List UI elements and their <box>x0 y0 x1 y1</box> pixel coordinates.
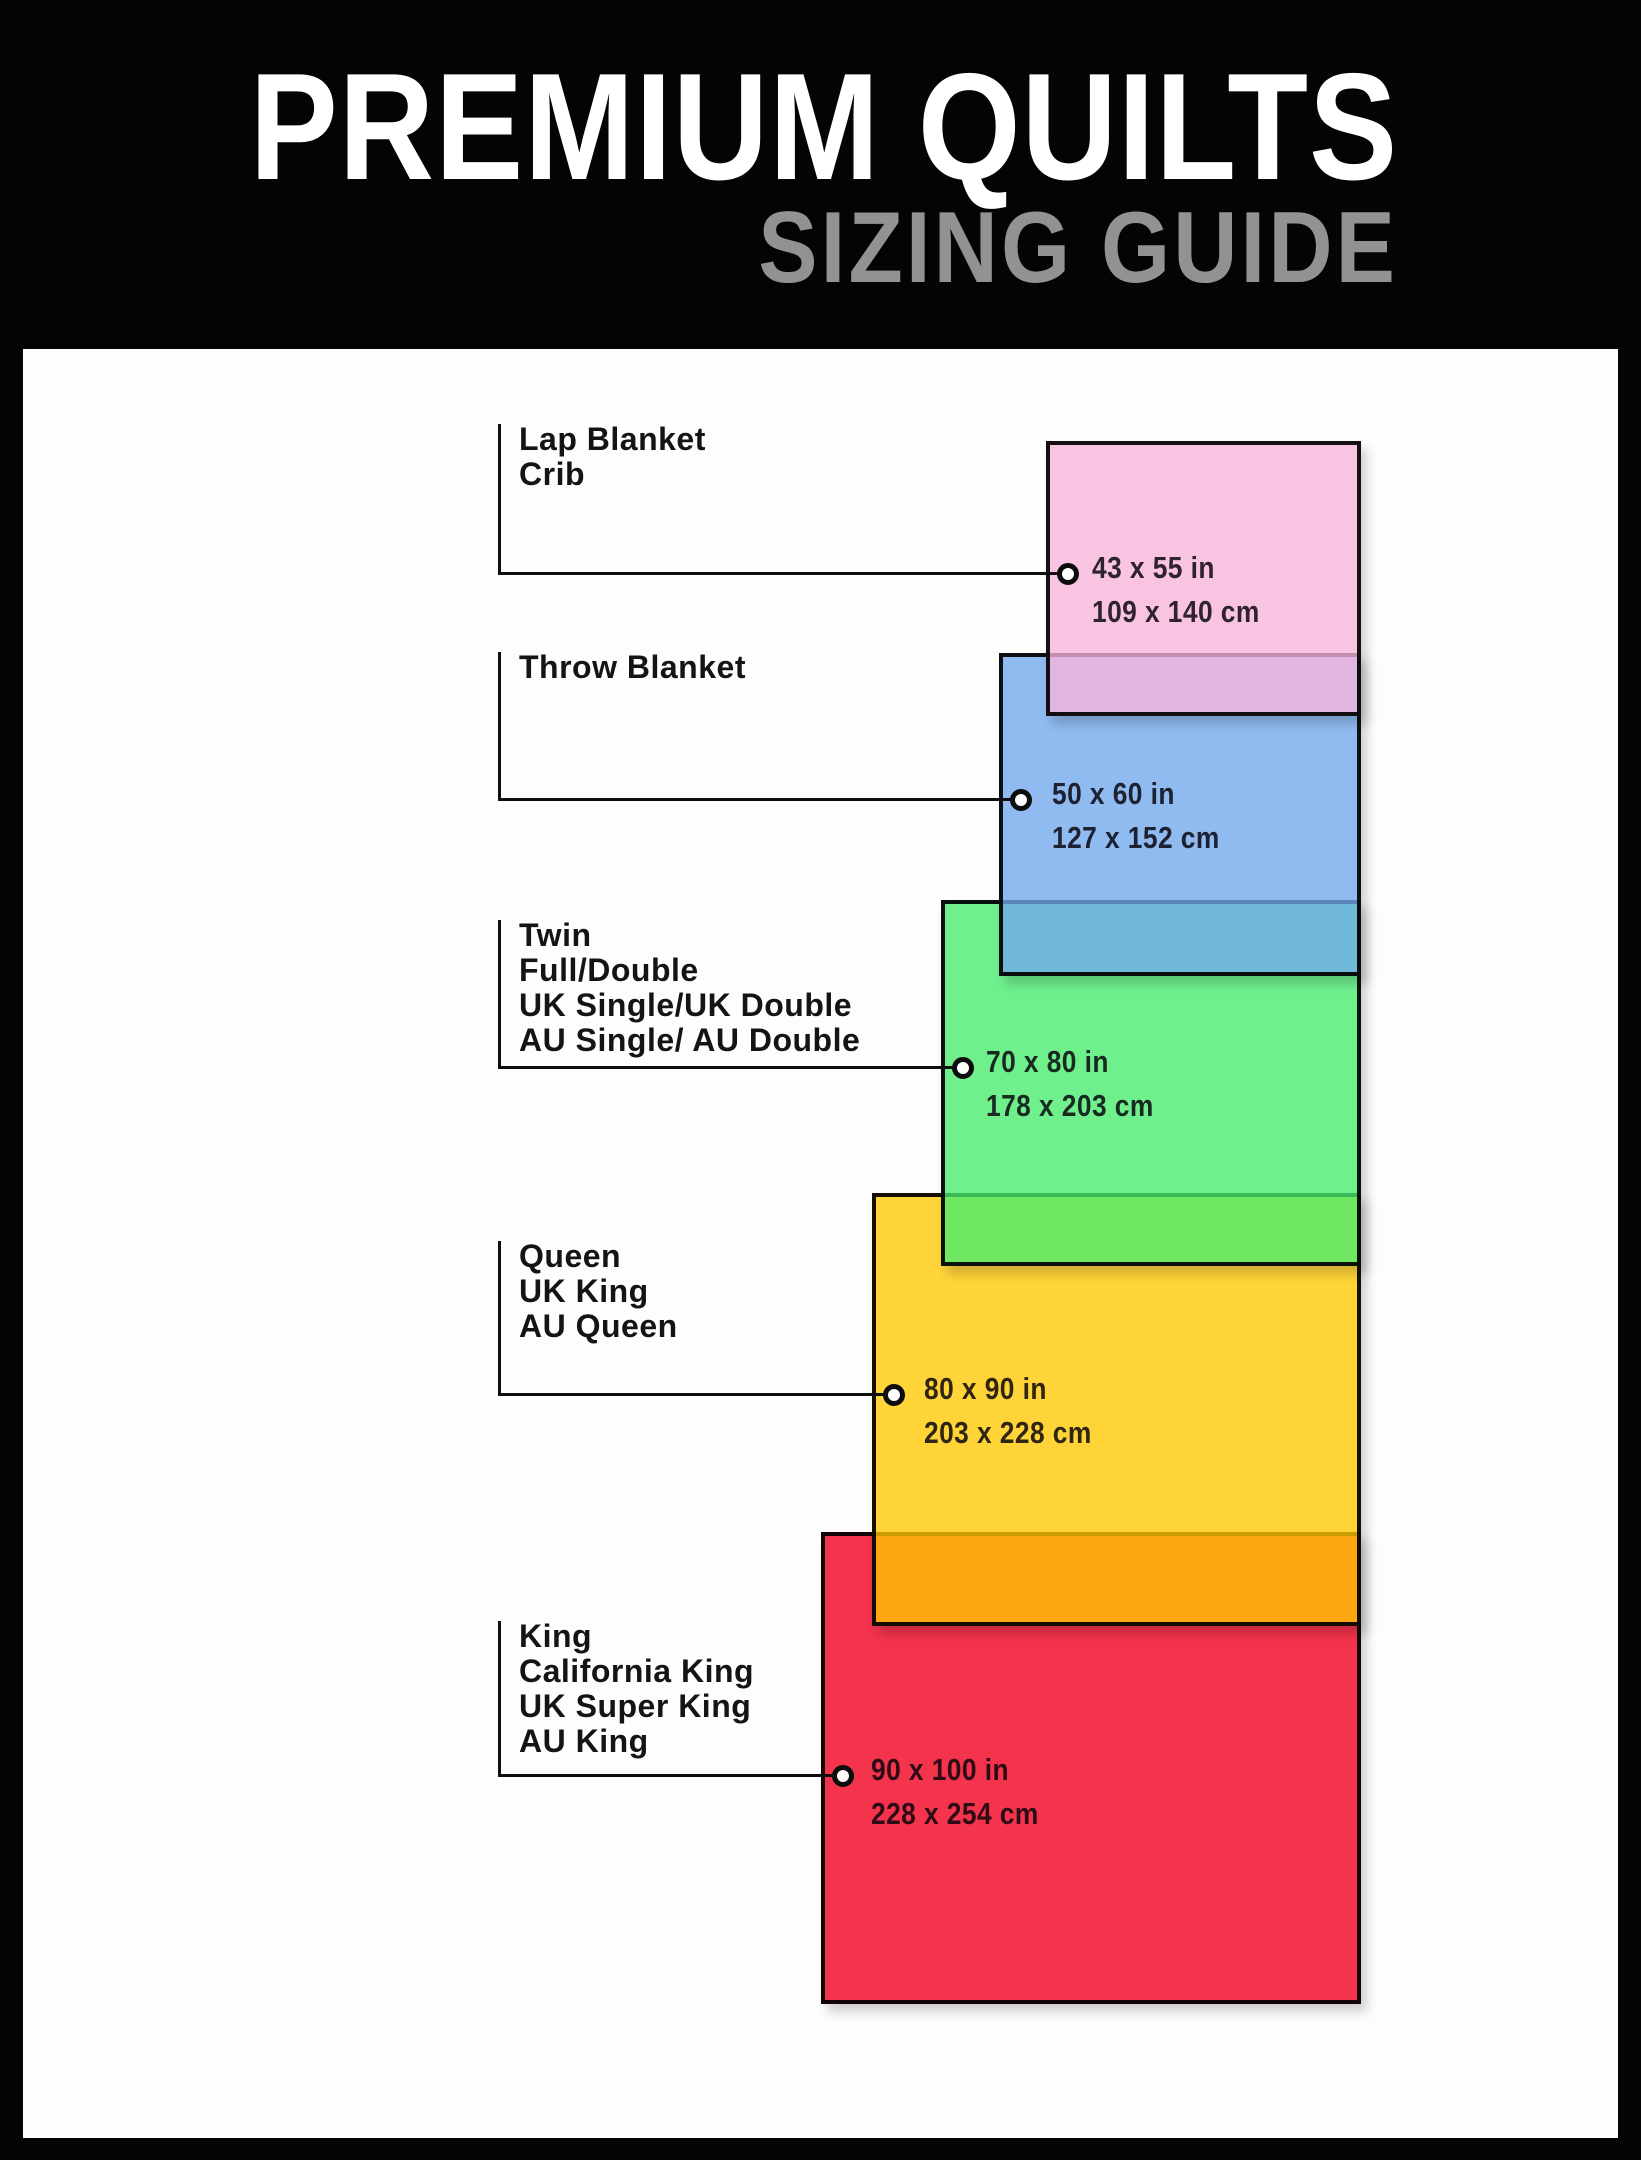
dimensions-inches: 90 x 100 in <box>871 1748 1039 1792</box>
page-title: PREMIUM QUILTS <box>250 52 1398 202</box>
size-label-line: UK Single/UK Double <box>519 988 860 1023</box>
size-label-line: Lap Blanket <box>519 422 706 457</box>
page-subtitle: SIZING GUIDE <box>758 198 1398 298</box>
dimensions-cm: 228 x 254 cm <box>871 1792 1039 1836</box>
leader-line-horizontal-queen-uk-king <box>498 1393 894 1396</box>
dimensions-cm: 127 x 152 cm <box>1052 816 1220 860</box>
infographic-page: { "header": { "title": "PREMIUM QUILTS",… <box>0 0 1641 2160</box>
size-label-line: California King <box>519 1654 754 1689</box>
leader-dot-throw-blanket <box>1010 789 1032 811</box>
leader-line-horizontal-throw-blanket <box>498 798 1021 801</box>
dimensions-queen-uk-king: 80 x 90 in203 x 228 cm <box>924 1367 1092 1455</box>
leader-line-vertical-throw-blanket <box>498 652 501 800</box>
size-label-line: AU Single/ AU Double <box>519 1023 860 1058</box>
size-label-line: UK Super King <box>519 1689 754 1724</box>
dimensions-inches: 43 x 55 in <box>1092 546 1260 590</box>
leader-line-horizontal-lap-blanket-crib <box>498 572 1068 575</box>
leader-dot-lap-blanket-crib <box>1057 563 1079 585</box>
size-label-twin-full-double: TwinFull/DoubleUK Single/UK DoubleAU Sin… <box>519 918 860 1058</box>
size-label-line: AU King <box>519 1724 754 1759</box>
leader-line-vertical-queen-uk-king <box>498 1241 501 1395</box>
size-label-king-california-king: KingCalifornia KingUK Super KingAU King <box>519 1619 754 1759</box>
dimensions-cm: 109 x 140 cm <box>1092 590 1260 634</box>
header-banner: PREMIUM QUILTS SIZING GUIDE <box>0 0 1641 349</box>
size-label-queen-uk-king: QueenUK KingAU Queen <box>519 1239 678 1344</box>
leader-line-vertical-lap-blanket-crib <box>498 424 501 574</box>
size-label-line: King <box>519 1619 754 1654</box>
size-label-line: Twin <box>519 918 860 953</box>
dimensions-cm: 203 x 228 cm <box>924 1411 1092 1455</box>
size-label-lap-blanket-crib: Lap BlanketCrib <box>519 422 706 492</box>
dimensions-cm: 178 x 203 cm <box>986 1084 1154 1128</box>
size-label-line: Full/Double <box>519 953 860 988</box>
leader-line-vertical-king-california-king <box>498 1621 501 1776</box>
dimensions-inches: 80 x 90 in <box>924 1367 1092 1411</box>
size-label-throw-blanket: Throw Blanket <box>519 650 746 685</box>
leader-dot-queen-uk-king <box>883 1384 905 1406</box>
size-label-line: AU Queen <box>519 1309 678 1344</box>
dimensions-inches: 50 x 60 in <box>1052 772 1220 816</box>
size-label-line: UK King <box>519 1274 678 1309</box>
leader-dot-king-california-king <box>832 1765 854 1787</box>
dimensions-throw-blanket: 50 x 60 in127 x 152 cm <box>1052 772 1220 860</box>
leader-line-horizontal-king-california-king <box>498 1774 843 1777</box>
size-label-line: Crib <box>519 457 706 492</box>
leader-dot-twin-full-double <box>952 1057 974 1079</box>
size-label-line: Queen <box>519 1239 678 1274</box>
dimensions-lap-blanket-crib: 43 x 55 in109 x 140 cm <box>1092 546 1260 634</box>
dimensions-king-california-king: 90 x 100 in228 x 254 cm <box>871 1748 1039 1836</box>
leader-line-horizontal-twin-full-double <box>498 1066 963 1069</box>
leader-line-vertical-twin-full-double <box>498 920 501 1068</box>
sizing-diagram-canvas: Lap BlanketCrib43 x 55 in109 x 140 cmThr… <box>23 349 1618 2138</box>
size-label-line: Throw Blanket <box>519 650 746 685</box>
dimensions-twin-full-double: 70 x 80 in178 x 203 cm <box>986 1040 1154 1128</box>
dimensions-inches: 70 x 80 in <box>986 1040 1154 1084</box>
